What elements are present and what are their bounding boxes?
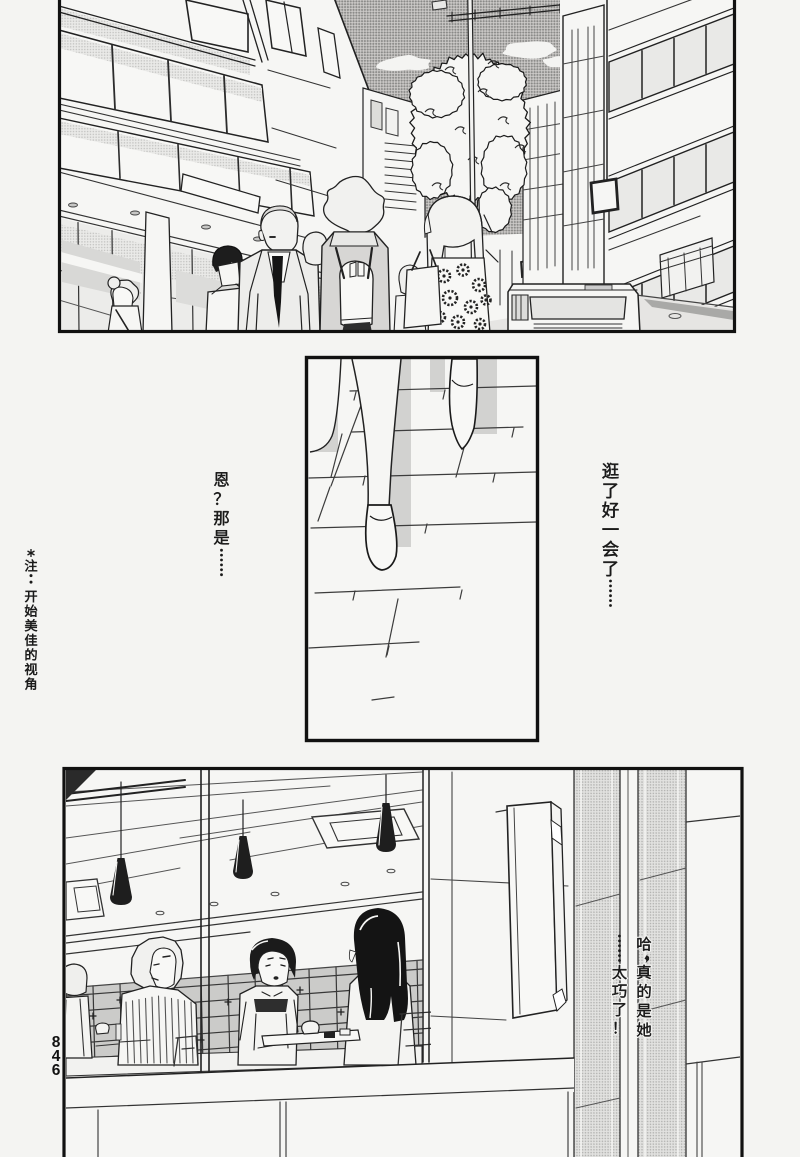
svg-text:6: 6 — [52, 1062, 61, 1079]
